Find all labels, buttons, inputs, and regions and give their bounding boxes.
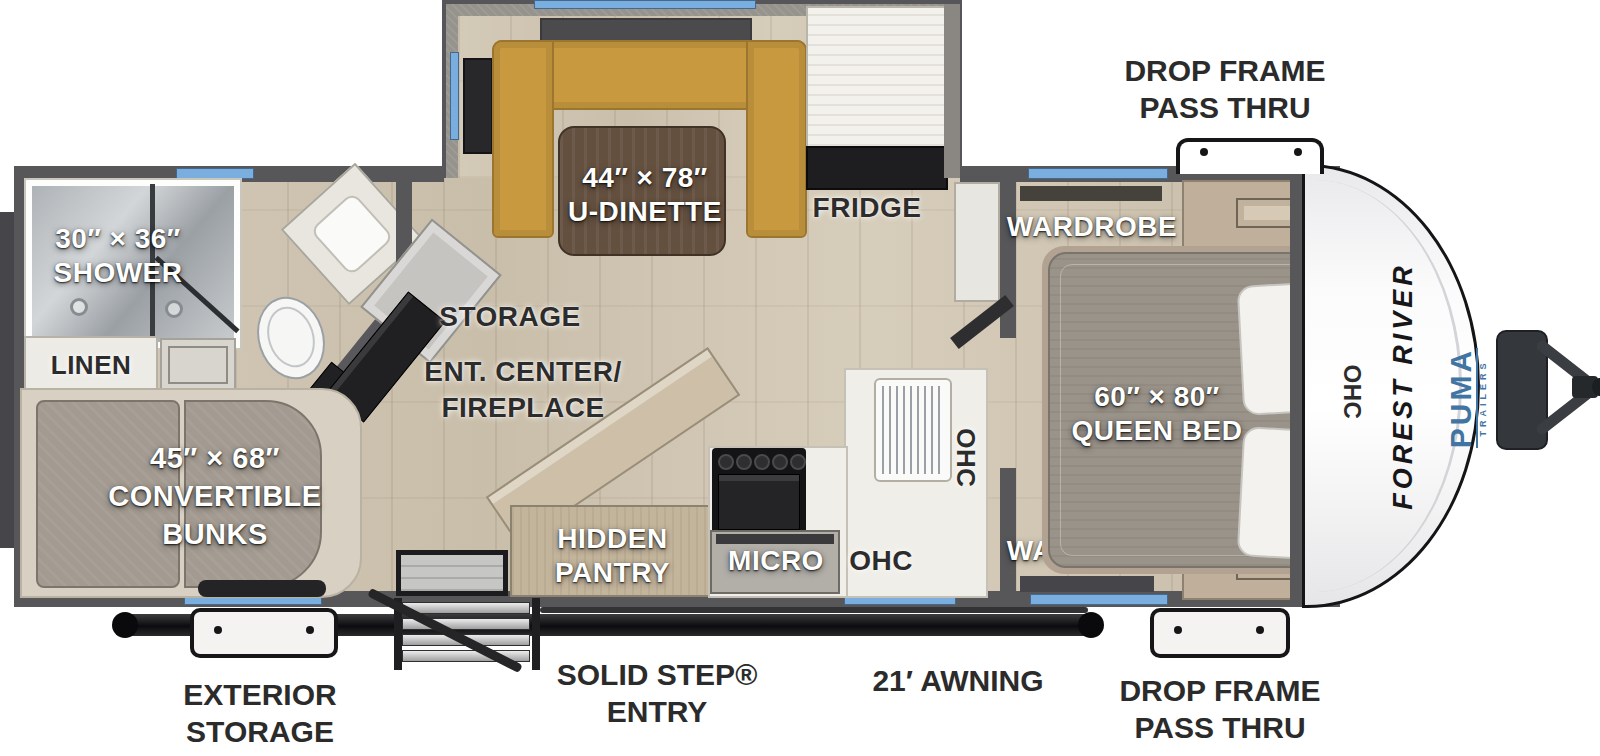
entry-step-well — [396, 550, 508, 596]
dinette-label: 44″ × 78″ U-DINETTE — [545, 160, 745, 230]
hitch-ball-tip — [1592, 378, 1600, 396]
pass-thru-bottom-latch — [1256, 626, 1264, 634]
awning-end-cap-right — [1078, 612, 1104, 638]
bunks-label: 45″ × 68″ CONVERTIBLE BUNKS — [110, 438, 320, 554]
puma-logo: PUMA TRAILERS — [1444, 323, 1490, 473]
dinette-bench-right — [746, 40, 807, 238]
solid-step-line1: SOLID STEP® — [532, 656, 782, 693]
shower-label: 30″ × 36″ SHOWER — [38, 220, 198, 292]
wardrobe-top-label: WARDROBE — [1002, 212, 1182, 242]
floorplan-canvas: 44″ × 78″ U-DINETTE FRIDGE 30″ × 36″ SHO… — [0, 0, 1600, 756]
wardrobe-top-text: WARDROBE — [1007, 210, 1177, 244]
ent-center-label-1: ENT. CENTER/ — [408, 356, 638, 388]
solid-step-label: SOLID STEP® ENTRY — [532, 656, 782, 730]
queen-bed-size: 60″ × 80″ — [1094, 380, 1220, 414]
drop-frame-bottom-line2: PASS THRU — [1070, 709, 1370, 746]
drop-frame-top-label: DROP FRAME PASS THRU — [1075, 52, 1375, 126]
ohc-upper-label: OHC — [951, 423, 981, 493]
fridge — [806, 6, 948, 148]
fridge-label-text: FRIDGE — [813, 191, 922, 225]
pass-thru-top-latch — [1200, 148, 1208, 156]
fridge-label: FRIDGE — [806, 194, 928, 222]
oven-front — [718, 474, 800, 530]
queen-bed-label: 60″ × 80″ QUEEN BED — [1052, 378, 1262, 450]
storage-label: STORAGE — [430, 302, 590, 332]
pass-thru-door-bottom — [1150, 608, 1290, 658]
pass-thru-door-top — [1176, 138, 1324, 174]
kitchen-end-cabinet — [954, 182, 1000, 302]
drop-frame-bottom-label: DROP FRAME PASS THRU — [1070, 672, 1370, 746]
pantry-line2: PANTRY — [555, 556, 670, 590]
bath-drawer-front — [168, 346, 228, 384]
slide-out-right-wall — [944, 4, 960, 178]
tv-icon — [463, 58, 493, 154]
ohc-upper-text: OHC — [951, 428, 982, 487]
ohc-counter-text: OHC — [849, 544, 913, 578]
ent-center-line2: FIREPLACE — [441, 391, 604, 425]
puma-sub-text: TRAILERS — [1478, 360, 1489, 437]
shower-drain-icon — [165, 300, 183, 318]
dinette-name: U-DINETTE — [568, 195, 722, 229]
wardrobe-track-bottom — [1020, 576, 1154, 592]
solid-step-line2: ENTRY — [532, 693, 782, 730]
sink-rack — [882, 386, 944, 474]
drop-frame-top-line2: PASS THRU — [1075, 89, 1375, 126]
stove-burner — [736, 454, 752, 470]
linen-label-text: LINEN — [51, 350, 132, 381]
awning-support — [540, 607, 1088, 613]
shower-drain-icon — [70, 298, 88, 316]
stove-burner — [754, 454, 770, 470]
stove-burner — [718, 454, 734, 470]
microwave-slot — [716, 534, 834, 544]
bedroom-top-window — [1028, 168, 1168, 179]
bunk-step-tray — [198, 580, 326, 597]
wardrobe-track-top — [1020, 186, 1162, 201]
ohc-front-text: OHC — [1338, 365, 1366, 420]
bedroom-bottom-window — [1030, 594, 1168, 605]
micro-label: MICRO — [712, 546, 840, 576]
hidden-pantry-label: HIDDEN PANTRY — [535, 522, 690, 590]
shower-name: SHOWER — [54, 256, 183, 290]
forest-river-text: FOREST RIVER — [1388, 262, 1419, 510]
shower-size: 30″ × 36″ — [55, 222, 181, 256]
awning-label: 21′ AWNING — [838, 662, 1078, 699]
puma-text: PUMA — [1446, 348, 1478, 448]
drop-frame-bottom-line1: DROP FRAME — [1070, 672, 1370, 709]
stove-burner — [772, 454, 788, 470]
queen-bed-name: QUEEN BED — [1072, 414, 1243, 448]
awning-label-text: 21′ AWNING — [838, 662, 1078, 699]
slide-out-top-window — [534, 0, 756, 9]
ohc-counter-label: OHC — [846, 546, 916, 576]
drop-frame-top-line1: DROP FRAME — [1075, 52, 1375, 89]
bunks-size: 45″ × 68″ — [150, 439, 280, 477]
storage-label-text: STORAGE — [439, 300, 580, 334]
fridge-front — [806, 146, 948, 190]
exterior-storage-door — [190, 608, 338, 658]
storage-door-latch — [306, 626, 314, 634]
linen-label: LINEN — [24, 350, 158, 380]
awning-end-cap-left — [112, 612, 138, 638]
entry-step-tread — [402, 602, 530, 614]
pass-thru-bottom-latch — [1174, 626, 1182, 634]
ohc-front-label: OHC — [1338, 352, 1366, 432]
storage-door-latch — [214, 626, 222, 634]
bunks-line3: BUNKS — [162, 515, 268, 553]
pantry-line1: HIDDEN — [557, 522, 667, 556]
dinette-size: 44″ × 78″ — [582, 161, 708, 195]
exterior-storage-label: EXTERIOR STORAGE — [140, 676, 380, 750]
forest-river-logo: FOREST RIVER — [1385, 221, 1421, 551]
pass-thru-top-latch — [1294, 148, 1302, 156]
stove-burner — [790, 454, 806, 470]
bunks-line2: CONVERTIBLE — [108, 477, 321, 515]
exterior-storage-line2: STORAGE — [140, 713, 380, 750]
micro-label-text: MICRO — [728, 544, 824, 578]
ent-center-line1: ENT. CENTER/ — [424, 355, 621, 389]
slide-out-side-window — [450, 52, 459, 140]
exterior-storage-line1: EXTERIOR — [140, 676, 380, 713]
